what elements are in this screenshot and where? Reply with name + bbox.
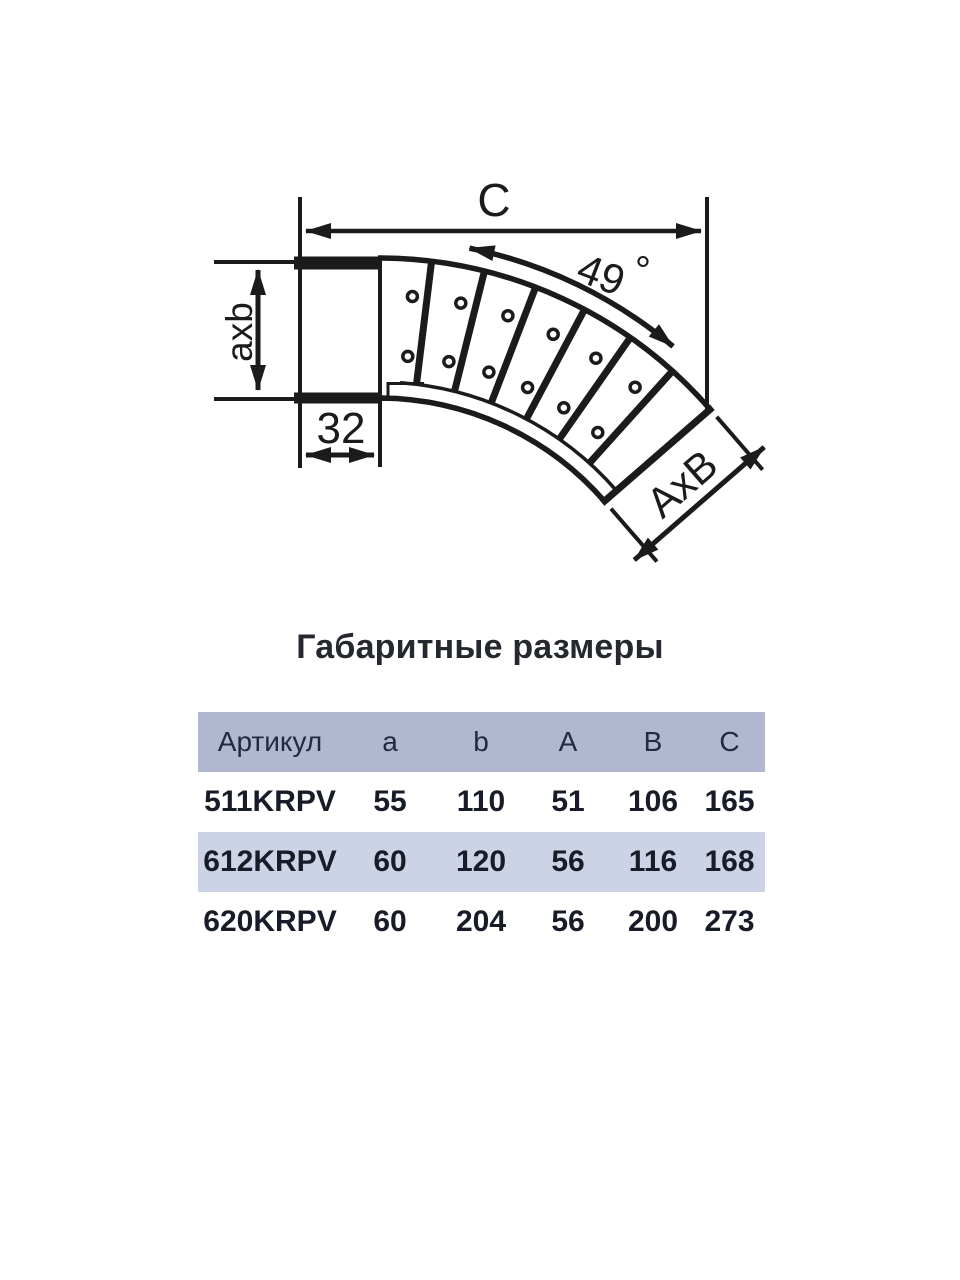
cell-C: 165 (694, 785, 765, 819)
rivet (444, 357, 454, 367)
column-header-b: b (438, 726, 524, 758)
cell-C: 168 (694, 845, 765, 879)
dimensions-table: Артикул a b A B C 511KRPV 55 110 51 106 … (198, 712, 765, 952)
label-axb: axb (219, 302, 260, 362)
cell-a: 60 (342, 845, 438, 879)
table-row: 612KRPV 60 120 56 116 168 (198, 832, 765, 892)
outlet-extension-inner (611, 509, 657, 562)
rivet (407, 292, 417, 302)
table-row: 620KRPV 60 204 56 200 273 (198, 892, 765, 952)
outlet-extension-outer (717, 417, 763, 470)
cell-article: 511KRPV (198, 785, 342, 819)
duct-body (378, 258, 712, 503)
cell-B: 106 (612, 785, 694, 819)
cell-b: 120 (438, 845, 524, 879)
duct-inner-arc (378, 398, 604, 501)
rivet (548, 329, 558, 339)
duct-seam (417, 260, 432, 384)
cell-A: 51 (524, 785, 612, 819)
table-header-row: Артикул a b A B C (198, 712, 765, 772)
duct-seam (526, 309, 585, 419)
column-header-a: a (342, 726, 438, 758)
rivet (484, 367, 494, 377)
column-header-B: B (612, 726, 694, 758)
column-header-A: A (524, 726, 612, 758)
rivet (591, 353, 601, 363)
column-header-C: C (694, 726, 765, 758)
cell-a: 55 (342, 785, 438, 819)
rivet (523, 383, 533, 393)
label-angle: 49 (571, 244, 631, 305)
cell-B: 200 (612, 905, 694, 939)
cell-C: 273 (694, 905, 765, 939)
column-header-article: Артикул (198, 726, 342, 758)
rivet (593, 428, 603, 438)
page: C 49 ° axb 32 AxB Габаритные размеры Арт… (0, 0, 960, 1280)
cell-a: 60 (342, 905, 438, 939)
label-c: C (477, 174, 510, 226)
dimension-diagram: C 49 ° axb 32 AxB (0, 0, 960, 600)
table-row: 511KRPV 55 110 51 106 165 (198, 772, 765, 832)
cell-A: 56 (524, 905, 612, 939)
label-depth: 32 (317, 404, 366, 453)
cell-B: 116 (612, 845, 694, 879)
cell-b: 110 (438, 785, 524, 819)
label-angle-degree: ° (635, 249, 651, 293)
cell-article: 620KRPV (198, 905, 342, 939)
rivet (630, 382, 640, 392)
rivet (456, 298, 466, 308)
duct-seam (455, 270, 485, 391)
cell-A: 56 (524, 845, 612, 879)
cell-article: 612KRPV (198, 845, 342, 879)
rivet (403, 351, 413, 361)
rivet (503, 311, 513, 321)
label-outlet: AxB (637, 441, 726, 527)
section-title: Габаритные размеры (0, 628, 960, 667)
cell-b: 204 (438, 905, 524, 939)
rivet (559, 403, 569, 413)
